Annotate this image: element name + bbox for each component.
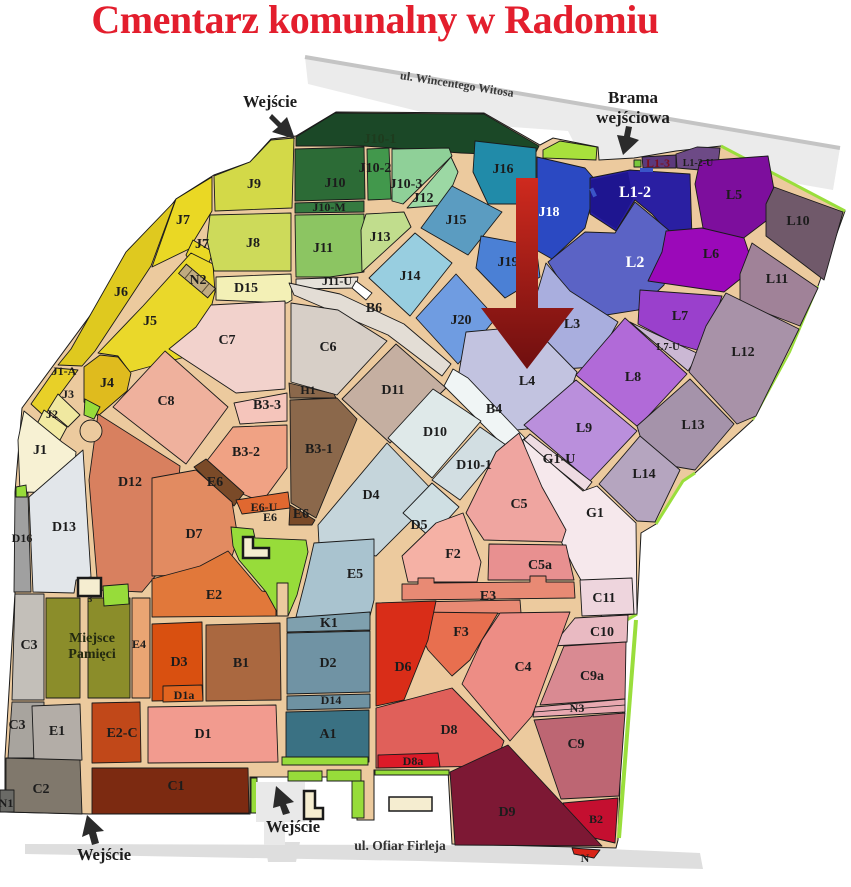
svg-text:E2: E2 bbox=[206, 588, 222, 603]
svg-text:J14: J14 bbox=[400, 269, 421, 284]
svg-text:L7-U: L7-U bbox=[656, 342, 680, 353]
svg-text:D3: D3 bbox=[170, 655, 187, 670]
svg-text:C7: C7 bbox=[218, 333, 235, 348]
svg-text:D1a: D1a bbox=[174, 688, 195, 702]
svg-text:J3: J3 bbox=[62, 387, 74, 401]
svg-text:L6: L6 bbox=[703, 247, 719, 262]
svg-text:J13: J13 bbox=[370, 230, 391, 245]
svg-text:E6: E6 bbox=[263, 510, 277, 524]
svg-text:C2: C2 bbox=[32, 782, 49, 797]
svg-text:D11: D11 bbox=[381, 383, 404, 398]
svg-text:N1: N1 bbox=[0, 796, 13, 810]
svg-text:D9: D9 bbox=[498, 805, 515, 820]
svg-text:J2: J2 bbox=[46, 407, 58, 421]
svg-text:L13: L13 bbox=[681, 418, 704, 433]
svg-text:L14: L14 bbox=[632, 467, 655, 482]
svg-text:D4: D4 bbox=[362, 488, 379, 503]
svg-text:E3: E3 bbox=[480, 589, 496, 604]
svg-text:J20: J20 bbox=[451, 313, 472, 328]
svg-text:J1: J1 bbox=[33, 443, 47, 458]
svg-text:H1: H1 bbox=[300, 383, 315, 397]
svg-text:D13: D13 bbox=[52, 520, 76, 535]
svg-text:B1: B1 bbox=[233, 656, 249, 671]
svg-text:J7: J7 bbox=[195, 237, 209, 252]
svg-text:A1: A1 bbox=[319, 727, 336, 742]
svg-text:Pamięci: Pamięci bbox=[68, 647, 116, 662]
svg-text:Brama: Brama bbox=[608, 88, 659, 107]
svg-text:D8a: D8a bbox=[403, 754, 424, 768]
svg-text:F3: F3 bbox=[453, 625, 469, 640]
svg-text:C5: C5 bbox=[510, 497, 527, 512]
svg-text:D5: D5 bbox=[410, 518, 427, 533]
svg-text:L7: L7 bbox=[672, 309, 688, 324]
svg-text:L12: L12 bbox=[731, 345, 754, 360]
svg-text:D15: D15 bbox=[234, 281, 258, 296]
svg-text:Miejsce: Miejsce bbox=[69, 631, 115, 646]
svg-text:E6: E6 bbox=[293, 507, 309, 522]
svg-text:N2: N2 bbox=[189, 273, 206, 288]
svg-text:F2: F2 bbox=[445, 547, 461, 562]
svg-text:D14: D14 bbox=[321, 693, 342, 707]
svg-text:E2-C: E2-C bbox=[106, 726, 137, 741]
svg-text:E6: E6 bbox=[207, 475, 223, 490]
svg-text:N: N bbox=[581, 851, 590, 865]
svg-text:B3-2: B3-2 bbox=[232, 445, 260, 460]
svg-text:C10: C10 bbox=[590, 625, 614, 640]
svg-text:B2: B2 bbox=[589, 812, 603, 826]
svg-text:J6: J6 bbox=[114, 285, 128, 300]
svg-text:B3-1: B3-1 bbox=[305, 442, 333, 457]
svg-text:L10: L10 bbox=[786, 214, 809, 229]
svg-text:Wejście: Wejście bbox=[243, 92, 297, 111]
svg-text:C5a: C5a bbox=[528, 558, 552, 573]
svg-text:J5: J5 bbox=[143, 314, 157, 329]
svg-text:D16: D16 bbox=[12, 531, 33, 545]
svg-text:D12: D12 bbox=[118, 475, 142, 490]
svg-text:L9: L9 bbox=[576, 421, 592, 436]
svg-text:J18: J18 bbox=[539, 205, 560, 220]
svg-text:ul. Ofiar Firleja: ul. Ofiar Firleja bbox=[354, 838, 446, 853]
svg-text:C9: C9 bbox=[567, 737, 584, 752]
svg-text:B4: B4 bbox=[486, 402, 502, 417]
svg-text:L2: L2 bbox=[626, 254, 645, 271]
svg-text:Cmentarz komunalny w Radomiu: Cmentarz komunalny w Radomiu bbox=[91, 0, 658, 42]
svg-text:wejściowa: wejściowa bbox=[596, 108, 670, 127]
svg-text:B6: B6 bbox=[366, 301, 382, 316]
svg-text:C11: C11 bbox=[592, 591, 615, 606]
svg-text:L3: L3 bbox=[564, 317, 580, 332]
svg-text:J15: J15 bbox=[446, 213, 467, 228]
svg-text:N3: N3 bbox=[570, 701, 585, 715]
svg-text:J4: J4 bbox=[100, 376, 114, 391]
svg-text:L5: L5 bbox=[726, 188, 742, 203]
svg-text:E4: E4 bbox=[132, 637, 146, 651]
svg-text:G1: G1 bbox=[586, 506, 604, 521]
svg-text:J7: J7 bbox=[176, 213, 190, 228]
svg-text:J19: J19 bbox=[498, 255, 519, 270]
svg-text:D10: D10 bbox=[423, 425, 447, 440]
svg-text:J11: J11 bbox=[313, 241, 333, 256]
svg-text:J8: J8 bbox=[246, 236, 260, 251]
svg-text:D2: D2 bbox=[319, 656, 336, 671]
svg-text:E1: E1 bbox=[49, 724, 65, 739]
svg-text:J10-3: J10-3 bbox=[390, 177, 423, 192]
svg-text:K1: K1 bbox=[320, 616, 338, 631]
svg-text:C8: C8 bbox=[157, 394, 174, 409]
svg-text:L11: L11 bbox=[766, 272, 789, 287]
svg-text:D6: D6 bbox=[394, 660, 411, 675]
svg-text:C1: C1 bbox=[167, 779, 184, 794]
svg-text:Wejście: Wejście bbox=[77, 845, 131, 864]
svg-text:C3: C3 bbox=[8, 718, 25, 733]
svg-text:D8: D8 bbox=[440, 723, 457, 738]
svg-text:J10-M: J10-M bbox=[312, 200, 345, 214]
svg-text:D7: D7 bbox=[185, 527, 202, 542]
svg-text:G1-U: G1-U bbox=[543, 452, 576, 467]
svg-text:J12: J12 bbox=[413, 191, 434, 206]
svg-text:L4: L4 bbox=[519, 374, 535, 389]
svg-text:C4: C4 bbox=[514, 660, 531, 675]
svg-text:L8: L8 bbox=[625, 370, 641, 385]
svg-text:3: 3 bbox=[88, 594, 93, 604]
svg-text:E5: E5 bbox=[347, 567, 363, 582]
svg-text:D10-1: D10-1 bbox=[456, 458, 492, 473]
svg-text:C9a: C9a bbox=[580, 669, 604, 684]
svg-text:J10: J10 bbox=[325, 176, 346, 191]
svg-text:J9: J9 bbox=[247, 177, 261, 192]
svg-text:L1-2: L1-2 bbox=[619, 184, 651, 201]
svg-text:D1: D1 bbox=[194, 727, 211, 742]
svg-text:J1-A: J1-A bbox=[52, 364, 77, 378]
svg-text:L1-3: L1-3 bbox=[646, 156, 670, 170]
svg-text:J16: J16 bbox=[493, 162, 514, 177]
svg-text:Wejście: Wejście bbox=[266, 817, 320, 836]
svg-text:C3: C3 bbox=[20, 638, 37, 653]
svg-text:C6: C6 bbox=[319, 340, 336, 355]
svg-text:J10-1: J10-1 bbox=[364, 132, 397, 147]
svg-text:B3-3: B3-3 bbox=[253, 398, 281, 413]
svg-text:L1-2-U: L1-2-U bbox=[683, 158, 714, 169]
svg-text:J11-U: J11-U bbox=[322, 274, 352, 288]
svg-text:J10-2: J10-2 bbox=[359, 161, 392, 176]
